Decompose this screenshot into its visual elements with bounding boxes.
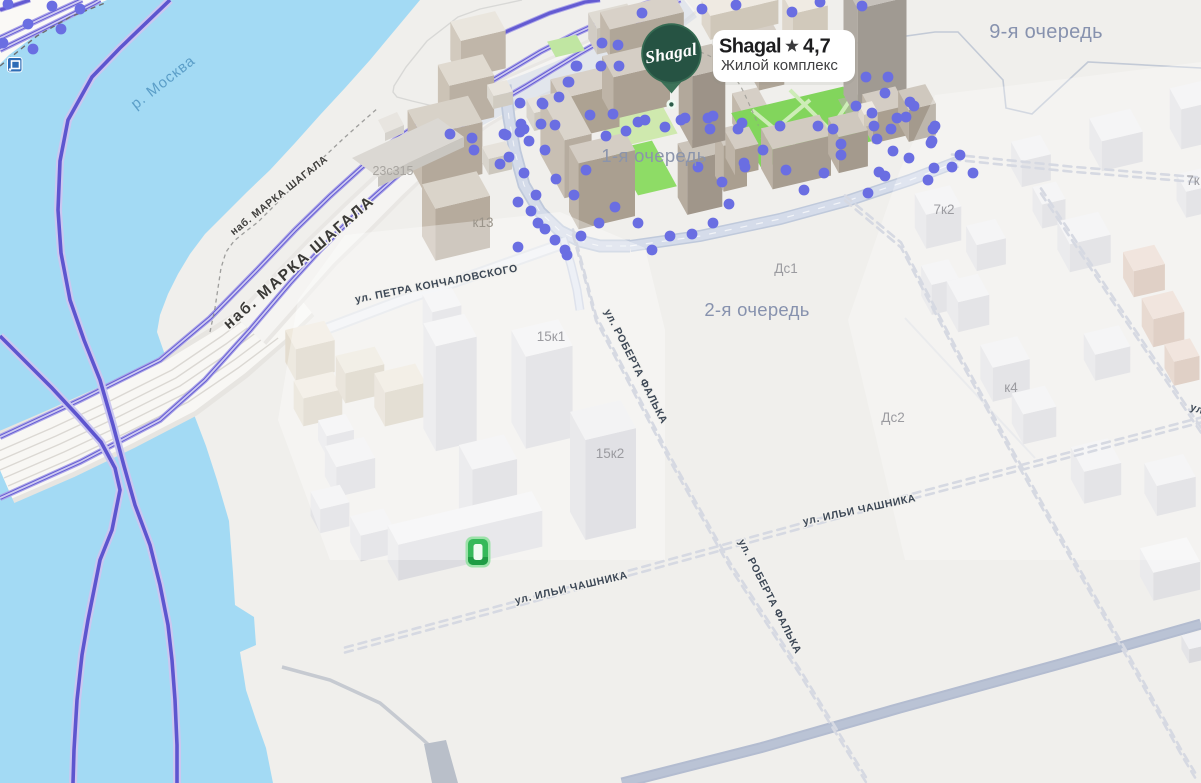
- svg-text:к13: к13: [473, 215, 494, 230]
- svg-text:7к: 7к: [1186, 173, 1200, 188]
- svg-text:Жилой комплекс: Жилой комплекс: [721, 57, 838, 74]
- svg-text:9-я очередь: 9-я очередь: [989, 21, 1103, 43]
- svg-text:2-я очередь: 2-я очередь: [704, 299, 809, 320]
- svg-text:15к1: 15к1: [537, 329, 565, 344]
- svg-text:4,7: 4,7: [803, 36, 831, 58]
- svg-text:7к2: 7к2: [934, 202, 955, 217]
- svg-text:23с315: 23с315: [372, 164, 413, 178]
- svg-text:15к2: 15к2: [596, 446, 624, 461]
- svg-text:Дс1: Дс1: [774, 261, 797, 276]
- svg-text:Дс2: Дс2: [881, 410, 904, 425]
- svg-text:к4: к4: [1004, 380, 1018, 395]
- svg-text:Shagal: Shagal: [719, 36, 781, 58]
- svg-text:1-я очередь: 1-я очередь: [601, 145, 706, 166]
